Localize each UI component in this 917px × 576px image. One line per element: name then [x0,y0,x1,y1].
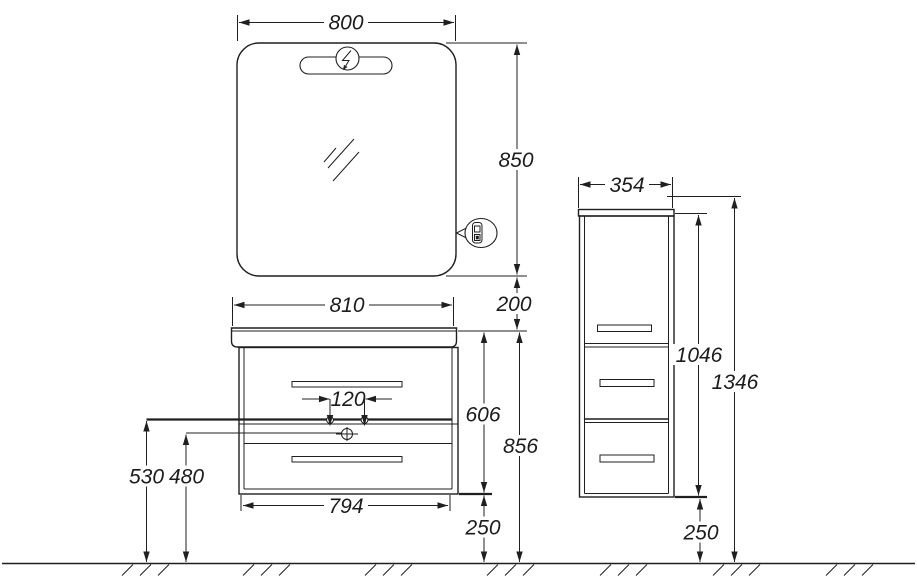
glass-reflection-hatch [324,139,359,181]
drawer-1-handle [292,382,402,388]
technical-drawing: 800 850 200 810 354 120 606 856 250 794 … [0,0,917,576]
floor-hatching [122,565,873,576]
dim-mirror-width: 800 [328,12,363,35]
dim-column-body-height: 1046 [676,344,723,367]
dim-basin-width: 810 [329,294,364,317]
dim-column-width: 354 [609,174,644,197]
column-door-handle [598,325,652,332]
dimension-labels: 800 850 200 810 354 120 606 856 250 794 … [129,12,759,545]
dim-mirror-gap: 200 [495,293,531,316]
column-side-panels [585,216,669,494]
column-top-panel [579,210,675,217]
vanity-unit [232,328,459,494]
mirror [237,43,497,276]
extension-lines [233,15,742,511]
dim-drain-height: 480 [169,466,204,489]
drawer-2-handle [292,457,402,463]
dim-cabinet-width: 794 [328,495,363,518]
dim-supply-height: 530 [129,466,164,489]
dim-column-floor-gap: 250 [682,522,718,545]
dim-basin-height: 856 [503,435,538,458]
column-seam-lines [585,344,669,423]
floor [2,564,915,576]
light-symbol-circle [336,47,359,70]
dim-mirror-height: 850 [498,149,533,172]
socket-key-fill [476,236,479,240]
mirror-outline [237,43,456,276]
label-patches [126,12,762,543]
vanity-cabinet-body [239,348,458,495]
tall-column-cabinet [579,210,675,498]
column-drawer-1-handle [600,380,654,387]
dim-vanity-height: 606 [465,404,500,427]
drain-symbol-cross [336,427,358,441]
dim-faucet-spacing: 120 [330,388,365,411]
socket-callout [457,219,498,248]
dim-vanity-floor-gap: 250 [464,517,500,540]
dim-column-total-height: 1346 [712,371,759,394]
dimension-lines [147,23,735,563]
cabinet-side-panels [244,348,452,490]
drawing-svg: 800 850 200 810 354 120 606 856 250 794 … [0,0,917,576]
column-drawer-2-handle [600,455,654,462]
